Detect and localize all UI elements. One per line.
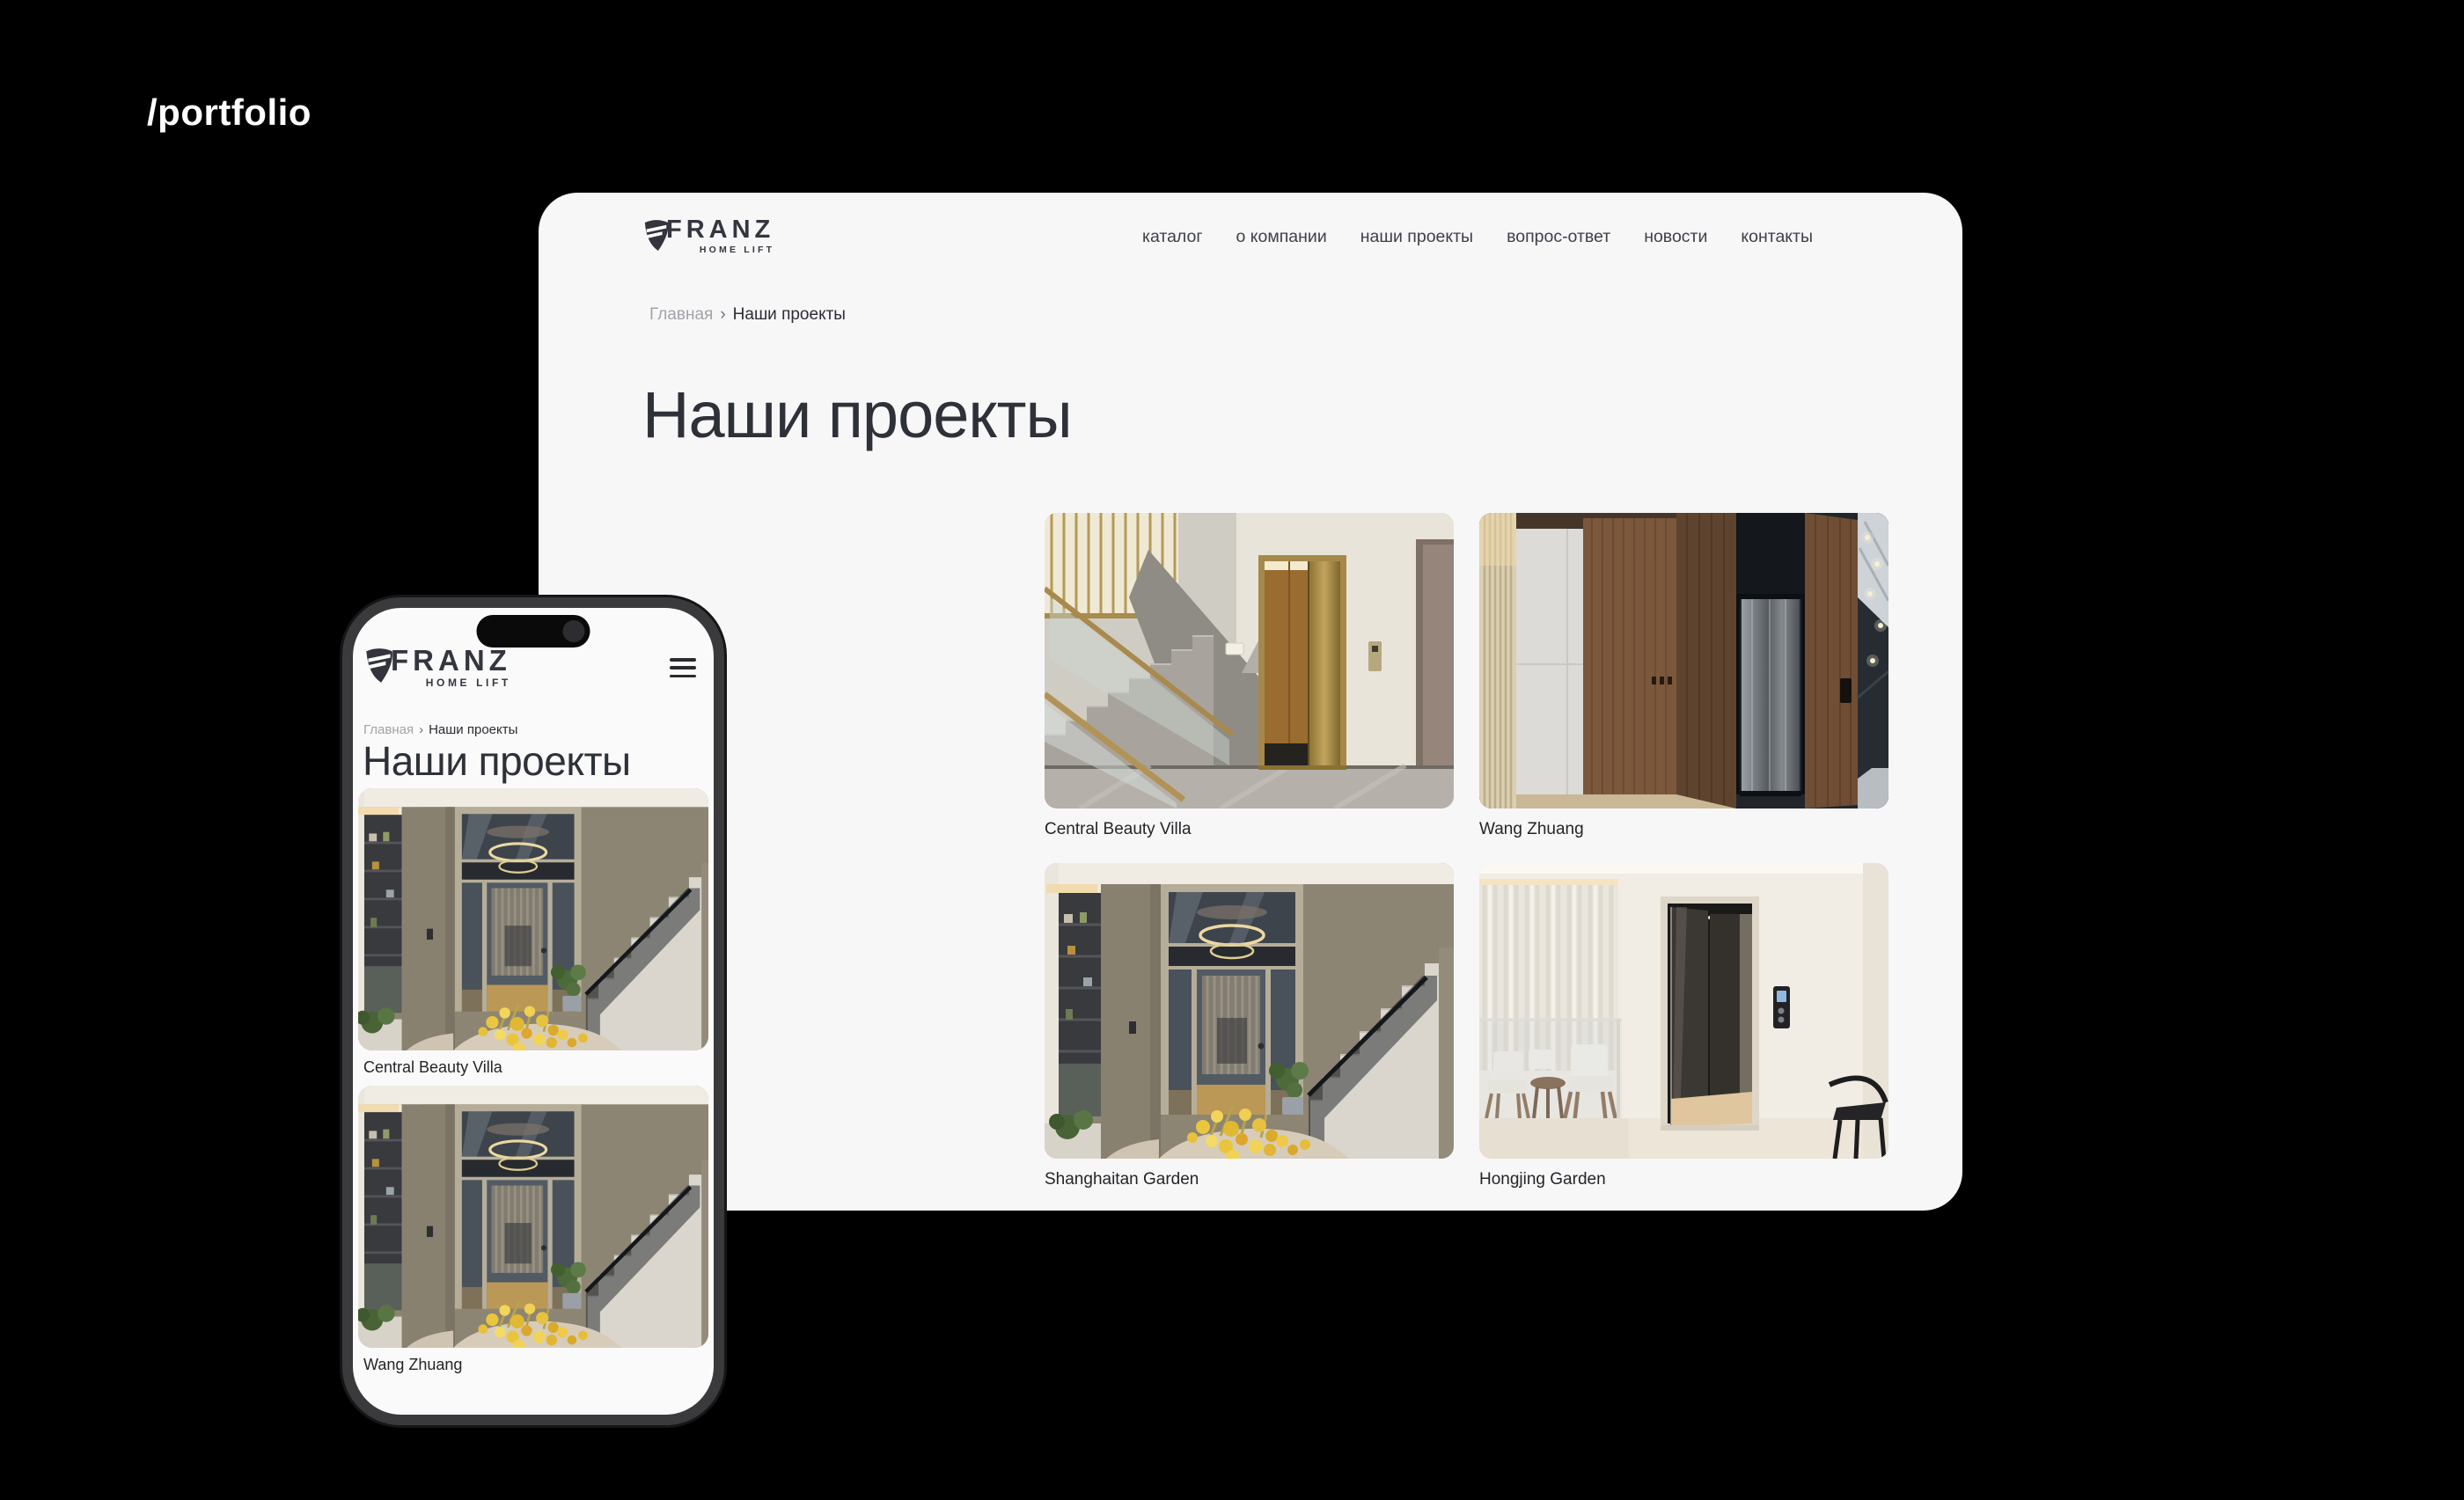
mobile-breadcrumb: Главная › Наши проекты [363,722,517,737]
project-caption: Central Beauty Villa [1045,820,1454,839]
main-nav: каталог о компании наши проекты вопрос-о… [1142,227,1813,247]
nav-item-projects[interactable]: наши проекты [1360,227,1473,247]
project-photo-shanghaitan-garden [1045,863,1454,1159]
brand-tagline: HOME LIFT [426,677,511,689]
breadcrumb-separator: › [419,722,423,737]
project-photo-wang-zhuang [1479,513,1888,809]
breadcrumb-current: Наши проекты [429,722,517,737]
breadcrumb-home-link[interactable]: Главная [363,722,414,737]
project-caption: Shanghaitan Garden [1045,1170,1454,1189]
mobile-site-header: FRANZ HOME LIFT [363,647,696,689]
mobile-project-card-wang-zhuang[interactable]: Wang Zhuang [358,1086,708,1374]
brand-name: FRANZ [391,647,511,674]
project-card-shanghaitan-garden[interactable]: Shanghaitan Garden [1045,863,1454,1189]
nav-item-about[interactable]: о компании [1236,227,1326,247]
mobile-project-card-central-beauty-villa[interactable]: Central Beauty Villa [358,788,708,1077]
nav-item-contacts[interactable]: контакты [1741,227,1813,247]
breadcrumb: Главная › Наши проекты [649,305,846,325]
project-caption: Wang Zhuang [363,1356,708,1374]
project-photo-central-beauty-villa [1045,513,1454,809]
project-card-central-beauty-villa[interactable]: Central Beauty Villa [1045,513,1454,839]
brand-tagline: HOME LIFT [700,245,774,255]
project-photo-central-beauty-villa [358,788,708,1050]
logo-text: FRANZ HOME LIFT [666,218,774,256]
project-caption: Central Beauty Villa [363,1058,708,1077]
project-caption: Wang Zhuang [1479,820,1888,839]
breadcrumb-home-link[interactable]: Главная [649,305,713,325]
page-title: /portfolio [147,91,312,134]
dynamic-island [477,615,590,648]
projects-grid: Central Beauty Villa [1045,513,1889,1189]
page-heading: Наши проекты [642,377,1072,452]
breadcrumb-separator: › [720,305,725,325]
brand-name: FRANZ [666,218,774,243]
site-header: FRANZ HOME LIFT каталог о компании наши … [642,209,1813,265]
nav-item-faq[interactable]: вопрос-ответ [1507,227,1610,247]
project-card-hongjing-garden[interactable]: Hongjing Garden [1479,863,1888,1189]
project-card-wang-zhuang[interactable]: Wang Zhuang [1479,513,1888,839]
camera-dot [563,620,585,642]
mobile-page-heading: Наши проекты [363,737,631,785]
project-photo-wang-zhuang [358,1086,708,1348]
franz-logo[interactable]: FRANZ HOME LIFT [642,218,774,256]
mockup-canvas: /portfolio FRANZ HOME LIFT каталог о ком… [0,0,2464,1500]
desktop-site-mockup: FRANZ HOME LIFT каталог о компании наши … [539,193,1962,1211]
logo-text: FRANZ HOME LIFT [391,647,511,689]
franz-logo-mobile[interactable]: FRANZ HOME LIFT [363,647,511,689]
phone-mockup-frame: FRANZ HOME LIFT Главная › Наши проекты Н… [342,597,724,1425]
project-photo-hongjing-garden [1479,863,1888,1159]
phone-screen: FRANZ HOME LIFT Главная › Наши проекты Н… [353,608,714,1415]
breadcrumb-current: Наши проекты [733,305,846,325]
project-caption: Hongjing Garden [1479,1170,1888,1189]
hamburger-menu-icon[interactable] [670,658,696,677]
nav-item-catalog[interactable]: каталог [1142,227,1203,247]
nav-item-news[interactable]: новости [1644,227,1707,247]
